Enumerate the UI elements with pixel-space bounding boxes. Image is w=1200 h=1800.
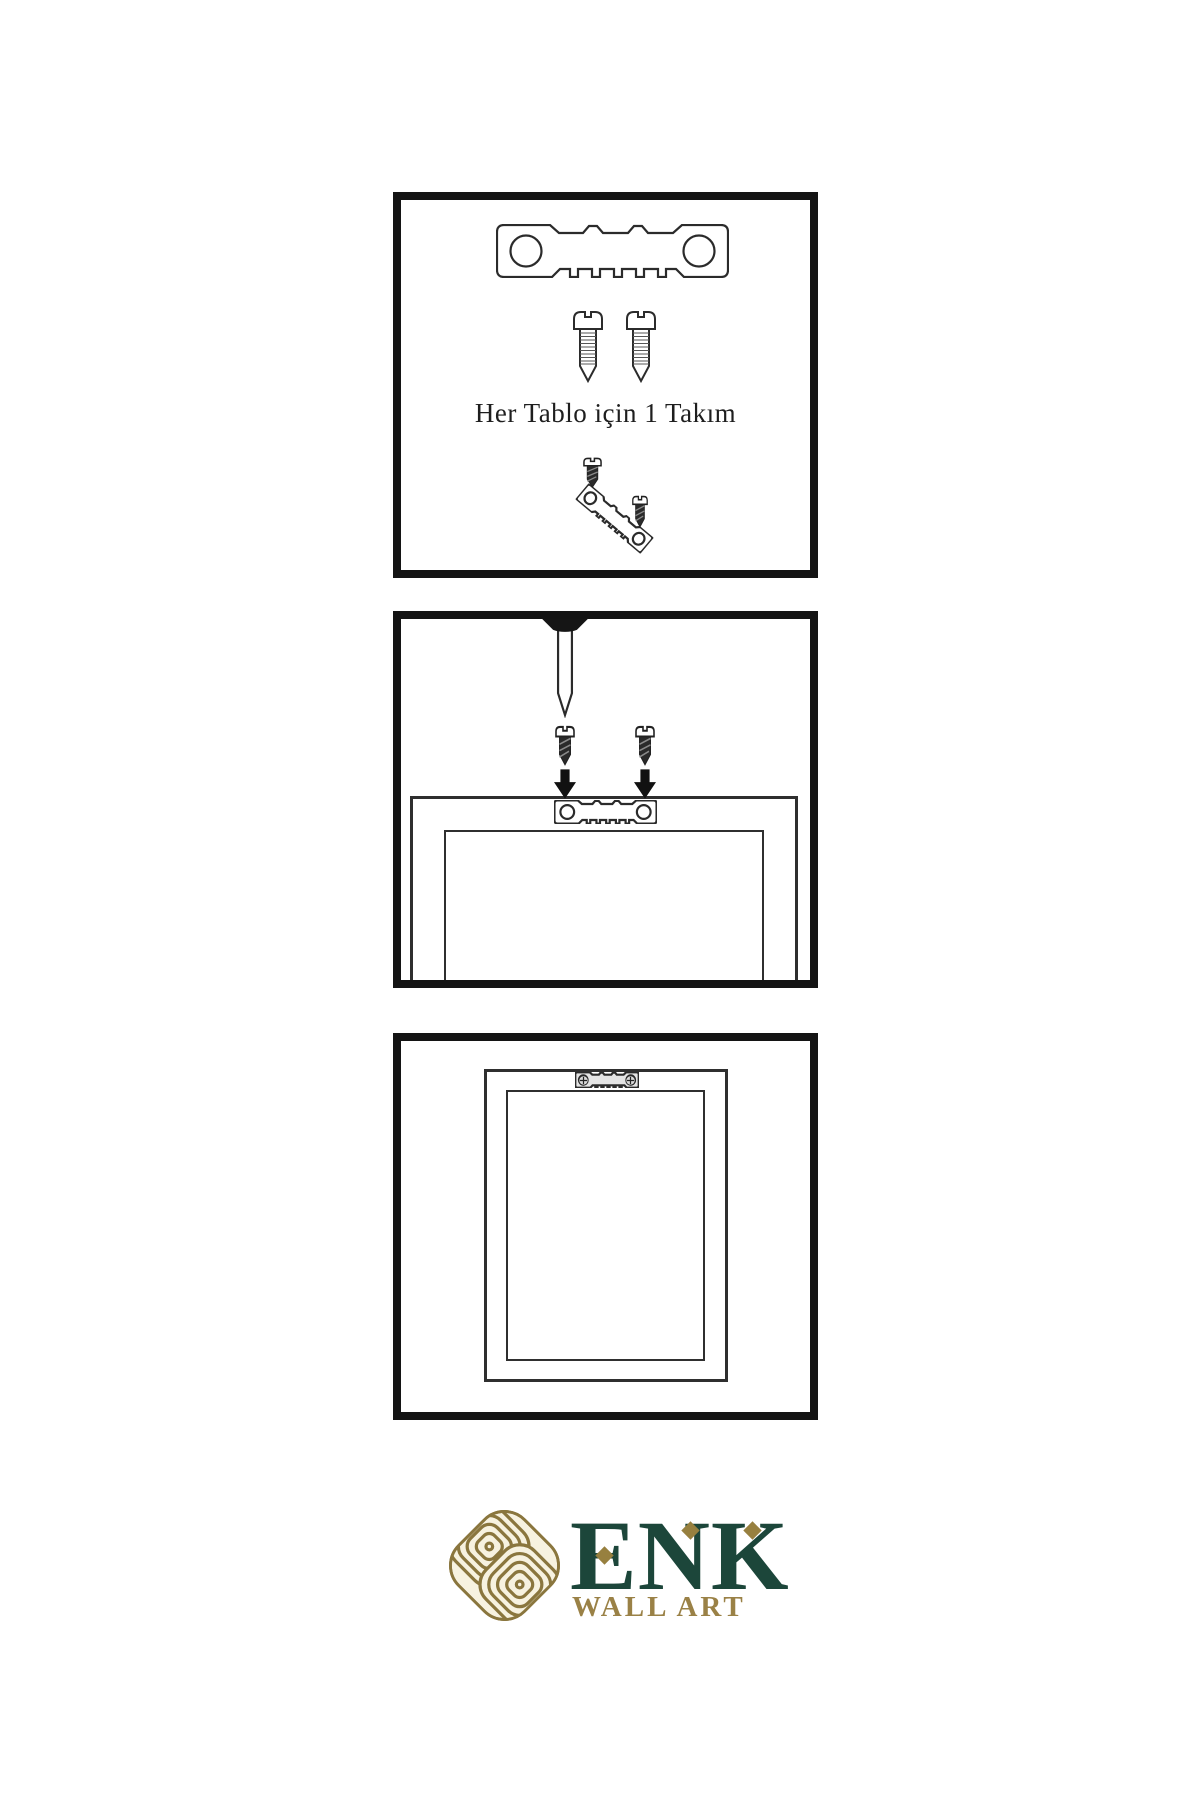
sawtooth-hanger-icon — [496, 224, 729, 278]
mounted-hanger — [575, 1072, 639, 1088]
screw-dark-icon — [583, 457, 602, 488]
screw-dark-icon — [555, 725, 575, 766]
screw-dark-icon — [632, 495, 648, 528]
screw-outline-icon — [626, 309, 656, 383]
sawtooth-hanger-icon — [554, 800, 657, 824]
frame-back-inner-edge — [444, 830, 764, 980]
step-panel-3 — [393, 1033, 818, 1420]
step-panel-2 — [393, 611, 818, 988]
hanger-assembly-demo — [571, 452, 663, 562]
screw-dark-icon — [635, 725, 655, 766]
brand-logo: ENK WALL ART — [437, 1490, 817, 1660]
kit-caption: Her Tablo için 1 Takım — [401, 398, 810, 429]
nail-icon — [542, 619, 588, 718]
knot-icon — [438, 1497, 571, 1634]
screw-outline-icon — [573, 309, 603, 383]
instruction-sheet: Her Tablo için 1 Takım — [0, 0, 1200, 1800]
phillips-head-icon — [578, 1075, 589, 1086]
phillips-head-icon — [625, 1075, 636, 1086]
brand-tagline: WALL ART — [572, 1593, 746, 1622]
arrow-down-icon — [554, 769, 576, 799]
step-panel-1: Her Tablo için 1 Takım — [393, 192, 818, 578]
frame-back-inner-edge — [506, 1090, 705, 1361]
arrow-down-icon — [634, 769, 656, 799]
